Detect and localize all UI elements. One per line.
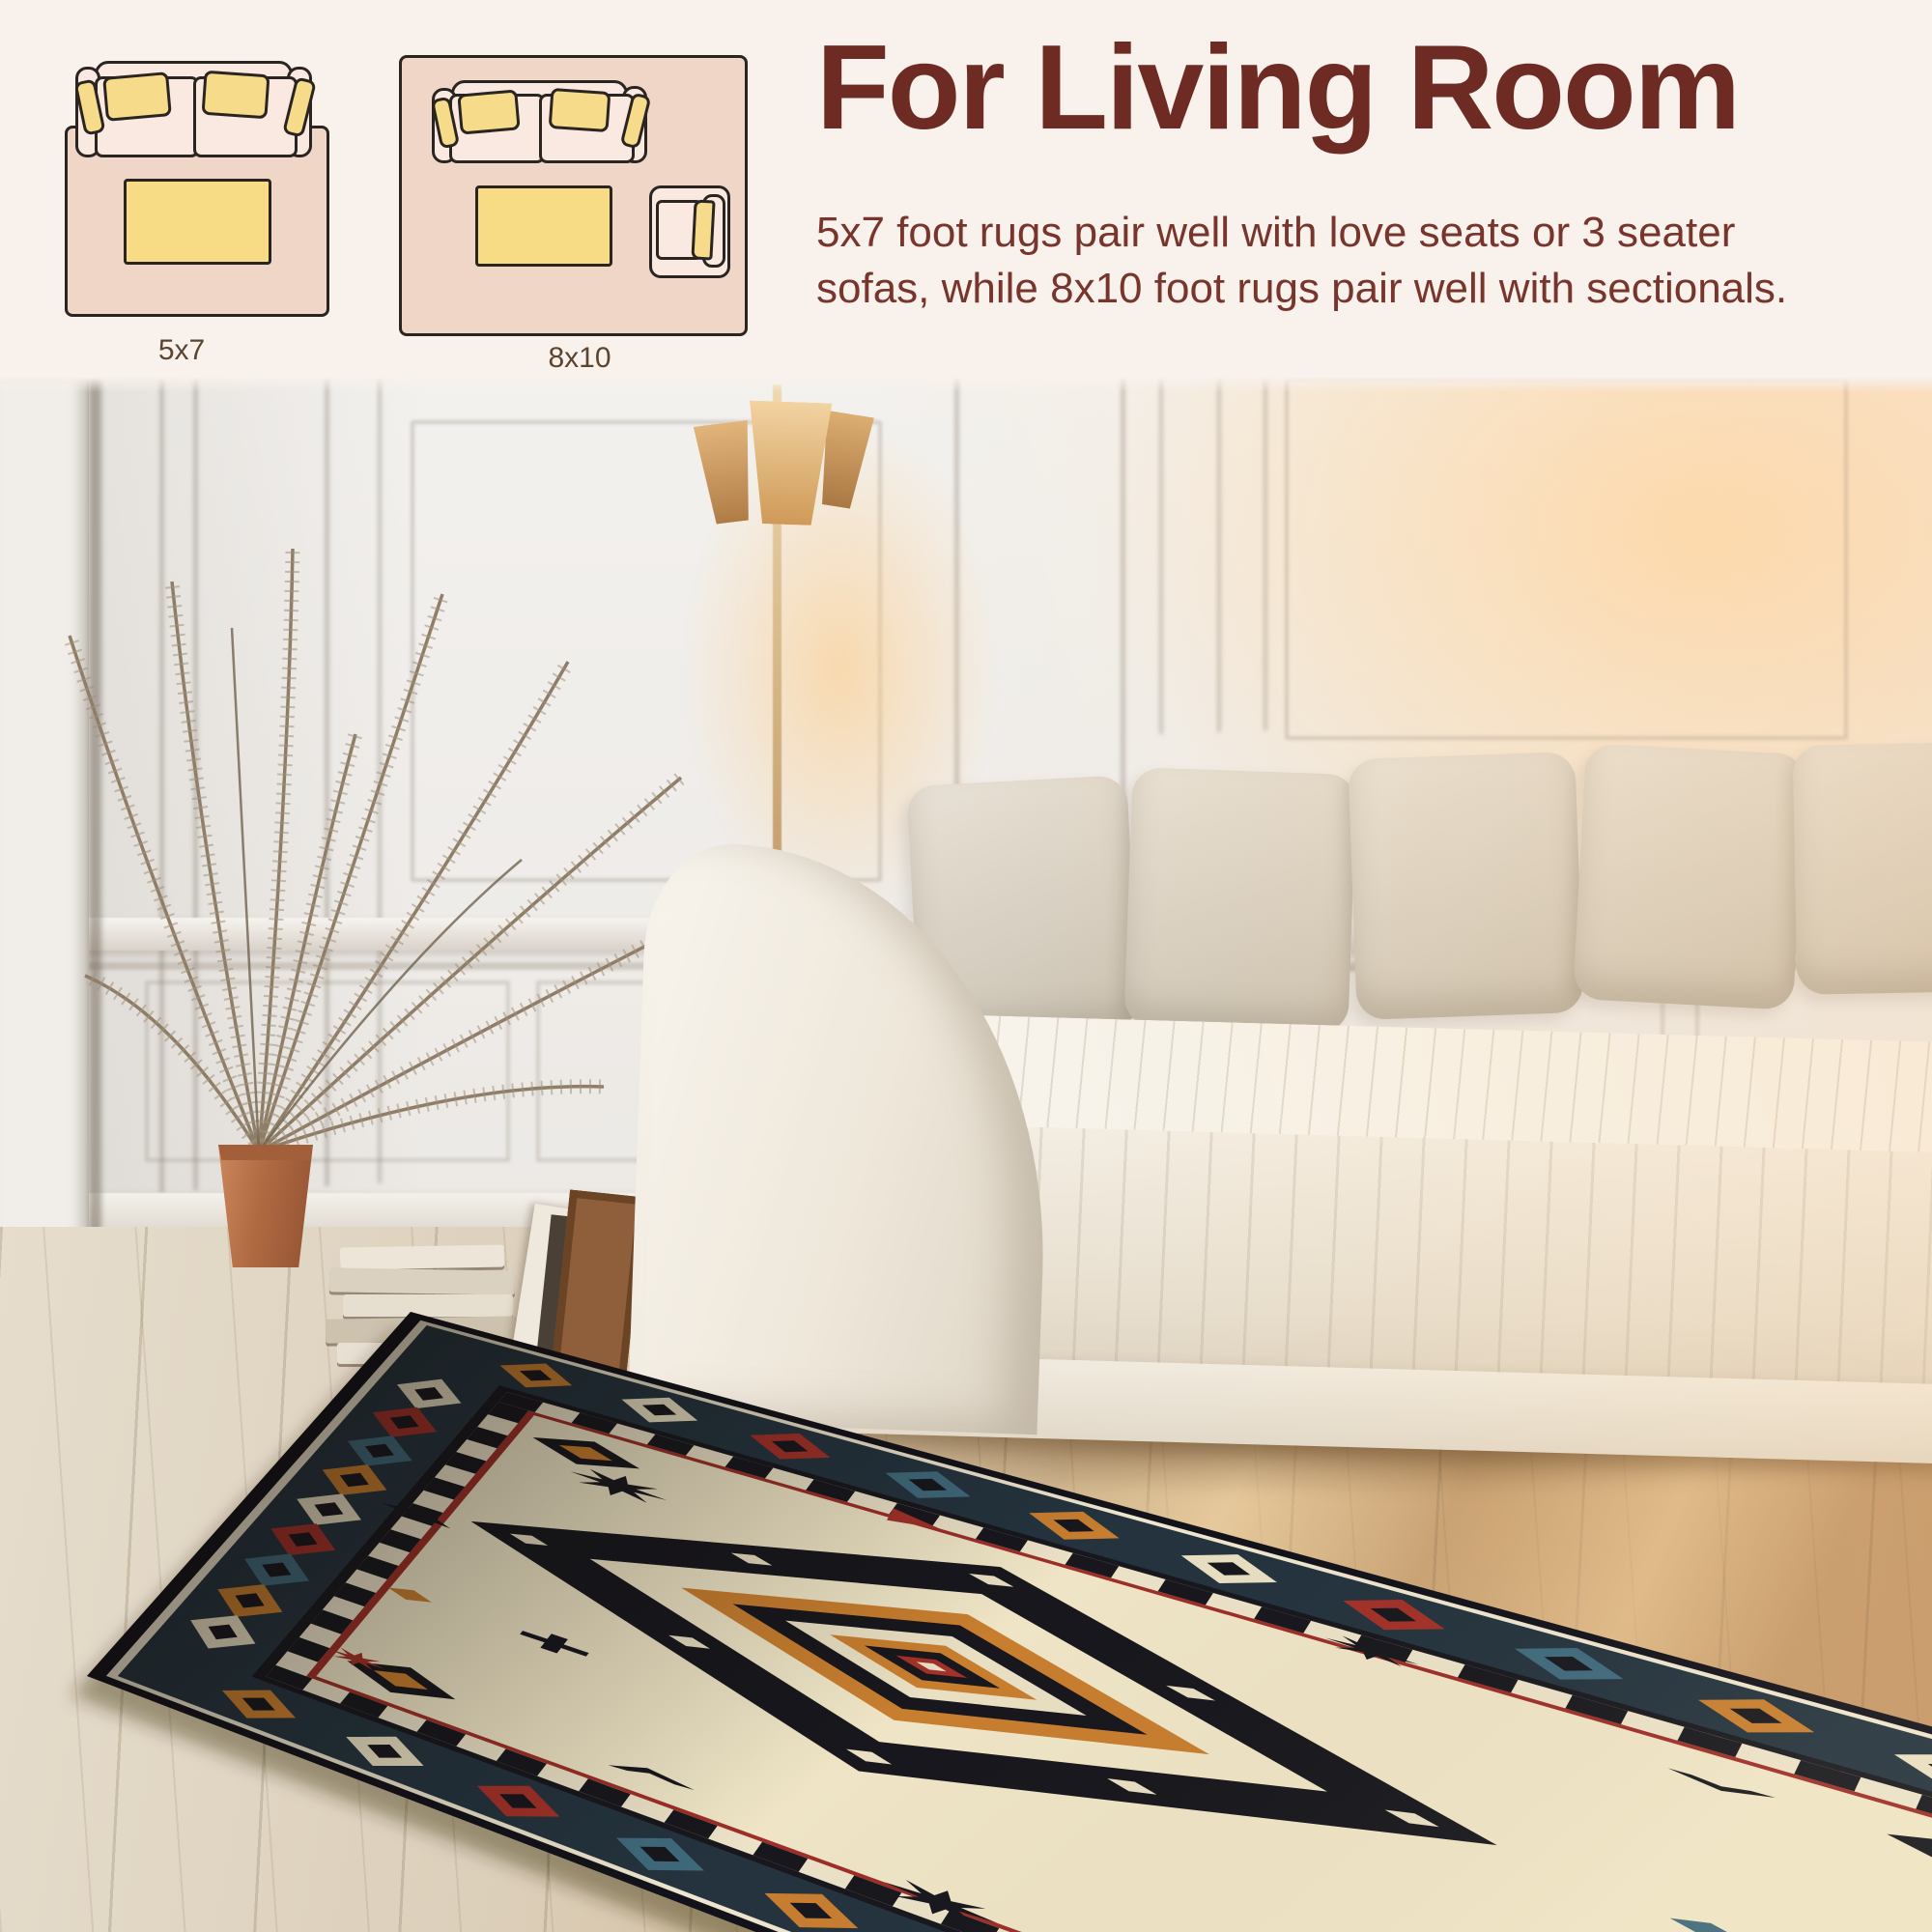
page-title: For Living Room	[816, 27, 1739, 149]
description-line-1: 5x7 foot rugs pair well with love seats …	[816, 205, 1787, 261]
armchair-cushion	[691, 199, 715, 260]
rug-size-label-5x7: 5x7	[104, 334, 259, 367]
sofa-topview-icon	[432, 80, 647, 161]
sofa-pillow	[201, 71, 270, 120]
sofa-pillow	[549, 88, 611, 132]
header-section: 5x7 8x10 For Living Room 5x7 foot rugs p…	[0, 0, 1932, 377]
armchair-topview-icon	[649, 185, 730, 278]
loveseat-topview-icon	[75, 61, 312, 155]
sofa-pillow	[457, 89, 520, 134]
sofa-pillow	[102, 71, 172, 122]
rug-lighting-overlay	[87, 1312, 1932, 1932]
coffee-table-icon	[124, 179, 271, 265]
coffee-table-icon	[475, 185, 612, 267]
product-infographic: 5x7 8x10 For Living Room 5x7 foot rugs p…	[0, 0, 1932, 1932]
page-description: 5x7 foot rugs pair well with love seats …	[816, 205, 1787, 317]
description-line-2: sofas, while 8x10 foot rugs pair well wi…	[816, 261, 1787, 317]
rug-size-label-8x10: 8x10	[502, 342, 657, 375]
